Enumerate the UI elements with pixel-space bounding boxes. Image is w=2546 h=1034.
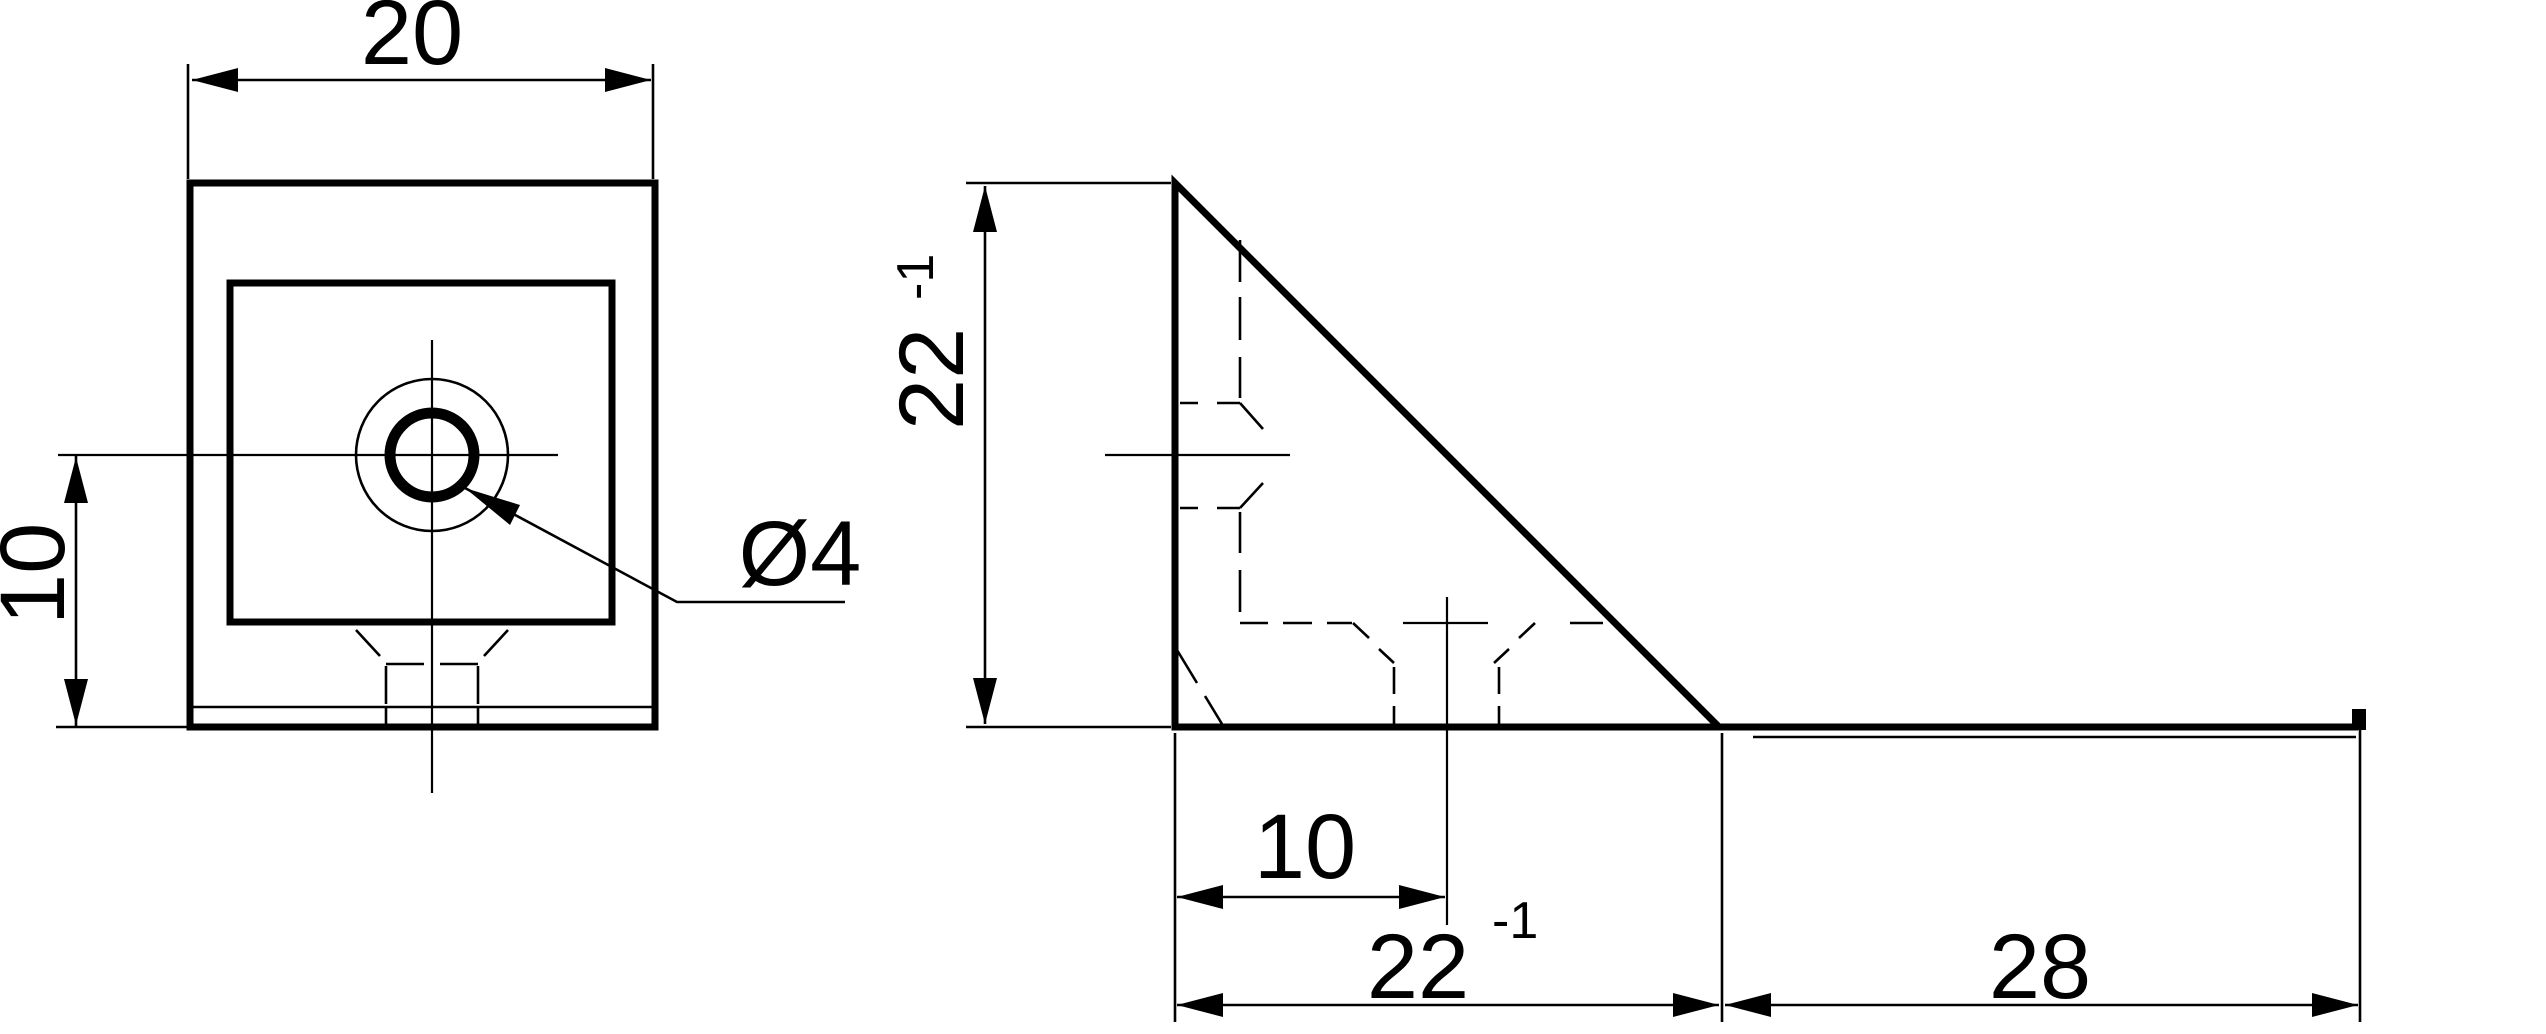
flange-end-lip [2352,709,2366,730]
hole-diameter-leader: Ø4 [465,488,861,605]
front-width-dimension: 20 [188,0,653,179]
dim-side-hole-offset: 10 [1254,796,1356,898]
arrowhead [1673,993,1719,1017]
arrowhead [1177,885,1223,909]
arrowhead [1725,993,1771,1017]
arrowhead [1399,885,1445,909]
technical-drawing-page: 20 10 Ø4 [0,0,2546,1034]
arrowhead [605,68,651,92]
dim-side-height: 22 [881,328,983,430]
arrowhead [64,679,88,725]
hole-diameter-label: Ø4 [739,503,862,605]
arrowhead [1177,993,1223,1017]
arrowhead [2312,993,2358,1017]
side-hidden-base-hole [1177,597,1603,925]
dim-side-height-exponent: -1 [887,254,945,300]
arrowhead [192,68,238,92]
bracket-drawing-canvas: 20 10 Ø4 [0,0,2546,1034]
arrowhead [973,678,997,724]
dim-side-base-exponent: -1 [1492,892,1538,950]
dim-side-base: 22 [1367,916,1469,1018]
side-hidden-vertical-hole [1105,240,1290,612]
flange-length-dimension: 28 [1725,728,2360,1022]
front-inner-boss-outline [230,283,612,622]
dim-flange-length: 28 [1989,916,2091,1018]
front-hole-offset-dimension: 10 [0,455,188,727]
arrowhead [973,186,997,232]
dim-front-width: 20 [361,0,463,84]
front-view: 20 10 Ø4 [0,0,861,793]
dim-front-hole-offset: 10 [0,523,84,625]
arrowhead [64,457,88,503]
side-view: 22 -1 10 22 -1 28 [881,183,2366,1022]
